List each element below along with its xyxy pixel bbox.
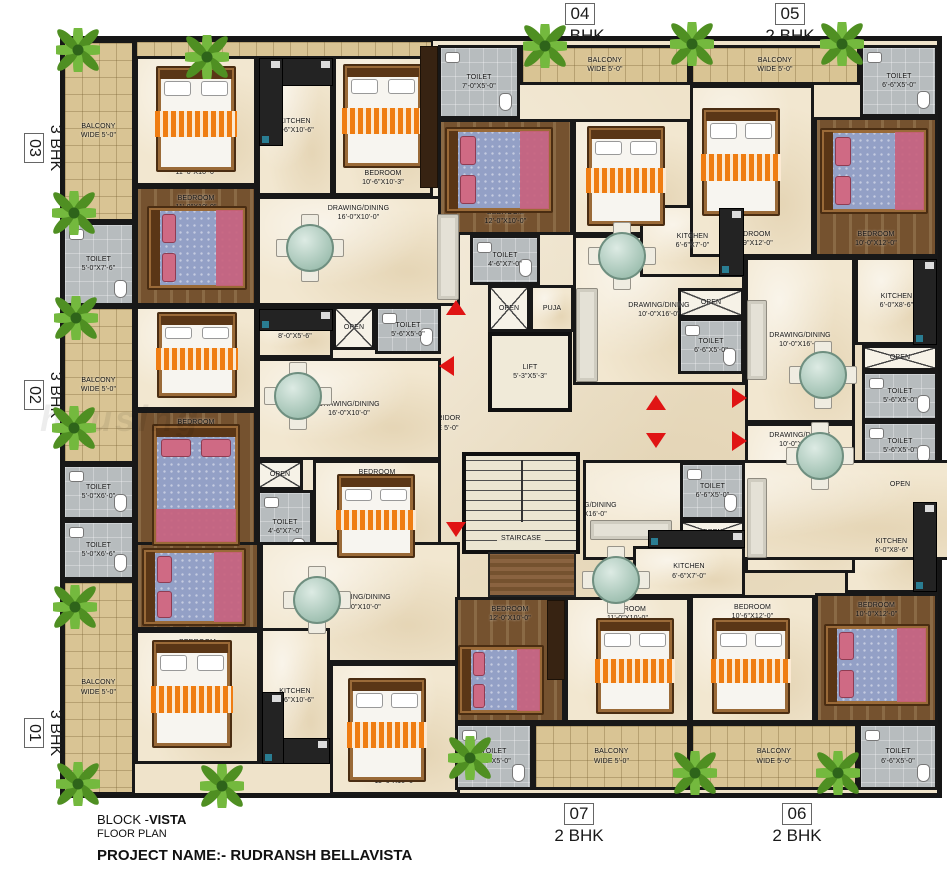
room-name: BEDROOM	[732, 603, 774, 612]
room-name: TOILET	[82, 255, 116, 264]
sofa-icon	[747, 478, 767, 558]
room-dimensions: 5'-6"X5'-0"	[883, 396, 917, 405]
plant-icon	[670, 22, 714, 66]
unit-type: 3 BHK	[46, 710, 64, 756]
sofa-icon	[747, 300, 767, 380]
bed-icon	[587, 126, 665, 226]
room-name: BEDROOM	[856, 601, 898, 610]
room-dimensions: 6'-6"X5'-0"	[696, 491, 730, 500]
room-label: DRAWING/DINING10'-0"X16'-0"	[583, 501, 617, 519]
room-toi01: TOILET5'-0"X6'-6"	[62, 520, 135, 580]
plant-icon	[673, 751, 717, 795]
room-open02: OPEN	[333, 306, 375, 350]
room-label: TOILET4'-6"X7'-0"	[488, 251, 522, 269]
unit-number: 06	[782, 803, 813, 825]
room-name: KITCHEN	[676, 232, 710, 241]
kitchen-counter-icon	[719, 208, 744, 276]
room-dimensions: 5'-0"X7'-6"	[82, 264, 116, 273]
bed-icon	[147, 206, 247, 290]
direction-arrow-icon	[646, 433, 666, 448]
room-name: OPEN	[499, 304, 519, 313]
room-toi05a: TOILET6'-6"X5'-0"	[860, 45, 938, 117]
sofa-icon	[437, 214, 459, 300]
bed-icon	[458, 645, 544, 715]
room-name: OPEN	[701, 298, 721, 307]
plant-icon	[52, 191, 96, 235]
direction-arrow-icon	[439, 356, 454, 376]
room-dimensions: 5'-0"X6'-6"	[82, 550, 116, 559]
bed-icon	[152, 640, 232, 748]
dining-table-icon	[786, 422, 854, 490]
direction-arrow-icon	[446, 300, 466, 315]
room-name: TOILET	[883, 387, 917, 396]
kitchen-counter-icon	[913, 259, 937, 345]
project-name: PROJECT NAME:- RUDRANSH BELLAVISTA	[97, 847, 412, 864]
room-name: TOILET	[883, 437, 917, 446]
room-name: DRAWING/DINING	[628, 301, 689, 310]
room-name: TOILET	[882, 72, 916, 81]
room-dimensions: 12'-0"X10'-0"	[485, 217, 527, 226]
room-name: KITCHEN	[880, 292, 914, 301]
bed-icon	[337, 474, 415, 558]
room-name: TOILET	[82, 541, 116, 550]
dining-table-icon	[283, 566, 351, 634]
room-label: BEDROOM10'-6"X10'-3"	[362, 169, 404, 187]
bed-icon	[824, 624, 930, 706]
room-label: PUJA	[543, 304, 561, 313]
bed-icon	[712, 618, 790, 714]
room-dimensions: 10'-0"X12'-0"	[856, 610, 898, 619]
unit-number: 05	[775, 3, 806, 25]
kitchen-counter-icon	[913, 502, 937, 592]
unit-label-03: 3 BHK 03	[21, 93, 67, 203]
room-name: BALCONY	[81, 678, 116, 687]
room-name: BEDROOM	[489, 605, 531, 614]
room-dimensions: 5'-6"X5'-0"	[883, 446, 917, 455]
title-block: BLOCK -VISTA FLOOR PLAN PROJECT NAME:- R…	[97, 812, 412, 864]
room-label: BALCONYWIDE 5'-0"	[81, 376, 116, 394]
unit-label-07: 07 2 BHK	[534, 803, 624, 846]
room-dimensions: WIDE 5'-0"	[594, 757, 629, 766]
room-dimensions: 6'-6"X7'-0"	[672, 572, 706, 581]
room-dimensions: WIDE 5'-0"	[587, 65, 622, 74]
room-label: TOILET6'-6"X5'-0"	[694, 337, 728, 355]
unit-number: 01	[24, 718, 44, 748]
room-dimensions: 5'-6"X5'-0"	[391, 330, 425, 339]
room-toi05b: TOILET5'-6"X5'-0"	[862, 371, 938, 421]
room-label: BALCONYWIDE 5'-0"	[81, 678, 116, 696]
room-dimensions: 6'-0"X8'-6"	[875, 546, 909, 555]
room-dimensions: 10'-6"X10'-3"	[362, 178, 404, 187]
room-name: TOILET	[694, 337, 728, 346]
room-label: BEDROOM12'-0"X10'-0"	[489, 605, 531, 623]
room-name: PUJA	[543, 304, 561, 313]
room-name: TOILET	[881, 747, 915, 756]
room-label: BALCONYWIDE 5'-0"	[587, 56, 622, 74]
room-name: BALCONY	[757, 56, 792, 65]
room-name: OPEN	[344, 323, 364, 332]
room-label: KITCHEN6'-0"X8'-6"	[880, 292, 914, 310]
plant-icon	[816, 751, 860, 795]
room-name: BALCONY	[587, 56, 622, 65]
room-label: BEDROOM10'-0"X12'-0"	[856, 601, 898, 619]
room-name: KITCHEN	[875, 537, 909, 546]
room-dimensions: 5'-0"X6'-0"	[82, 492, 116, 501]
room-name: STAIRCASE	[501, 534, 541, 543]
room-label: TOILET5'-0"X6'-6"	[82, 541, 116, 559]
dining-table-icon	[264, 362, 332, 430]
plant-icon	[56, 762, 100, 806]
room-dimensions: 10'-0"X16'-0"	[628, 310, 689, 319]
kitchen-counter-icon	[259, 58, 283, 146]
room-dimensions: 12'-0"X10'-0"	[489, 614, 531, 623]
room-toi06a: TOILET6'-6"X5'-0"	[858, 723, 938, 790]
room-label: TOILET5'-6"X5'-0"	[883, 437, 917, 455]
room-label: TOILET5'-6"X5'-0"	[391, 321, 425, 339]
plant-icon	[523, 24, 567, 68]
room-label: OPEN	[890, 353, 910, 362]
room-name: TOILET	[488, 251, 522, 260]
room-open05: OPEN	[862, 345, 938, 371]
room-label: KITCHEN6'-6"X7'-0"	[672, 562, 706, 580]
unit-type: 2 BHK	[765, 26, 814, 46]
kitchen-counter-icon	[259, 309, 333, 331]
room-name: BALCONY	[756, 747, 791, 756]
room-toi04a: TOILET7'-0"X5'-0"	[438, 45, 520, 119]
room-dimensions: 7'-0"X5'-0"	[462, 82, 496, 91]
room-label: TOILET6'-6"X5'-0"	[882, 72, 916, 90]
room-dimensions: 4'-6"X7'-0"	[268, 527, 302, 536]
room-name: BEDROOM	[362, 169, 404, 178]
plant-icon	[54, 296, 98, 340]
room-name: LIFT	[513, 363, 547, 372]
room-label: LIFT5'-3"X5'-3"	[513, 363, 547, 381]
wardrobe-icon	[547, 600, 565, 680]
room-name: BALCONY	[81, 122, 116, 131]
room-label: BALCONYWIDE 5'-0"	[594, 747, 629, 765]
direction-arrow-icon	[446, 522, 466, 537]
block-title: BLOCK -VISTA	[97, 812, 412, 827]
room-dimensions: WIDE 5'-0"	[81, 688, 116, 697]
plant-icon	[52, 406, 96, 450]
room-name: OPEN	[270, 470, 290, 479]
room-name: BALCONY	[594, 747, 629, 756]
floor-plan-label: FLOOR PLAN	[97, 828, 412, 840]
room-label: KITCHEN6'-6"X7'-0"	[676, 232, 710, 250]
room-toi04b: TOILET4'-6"X7'-0"	[470, 235, 540, 285]
room-name: DRAWING/DINING	[328, 204, 389, 213]
bed-icon	[343, 64, 423, 168]
room-open04: OPEN	[488, 285, 530, 332]
unit-type: 2 BHK	[772, 826, 821, 846]
room-dimensions: 6'-0"X8'-6"	[880, 301, 914, 310]
unit-type: 2 BHK	[554, 826, 603, 846]
room-label: OPEN	[701, 298, 721, 307]
room-label: OPEN	[270, 470, 290, 479]
bed-icon	[157, 312, 237, 398]
kitchen-counter-icon	[648, 530, 745, 548]
unit-label-06: 06 2 BHK	[752, 803, 842, 846]
dining-table-icon	[582, 546, 650, 614]
room-puja04: PUJA	[530, 285, 574, 332]
room-dimensions: 4'-6"X7'-0"	[488, 260, 522, 269]
direction-arrow-icon	[732, 431, 747, 451]
bed-icon	[702, 108, 780, 216]
room-label: OPEN	[890, 480, 910, 489]
bed-icon	[156, 66, 236, 172]
room-label: OPEN	[344, 323, 364, 332]
wood-passage	[488, 552, 576, 597]
plant-icon	[820, 22, 864, 66]
direction-arrow-icon	[646, 395, 666, 410]
direction-arrow-icon	[732, 388, 747, 408]
bed-icon	[152, 424, 240, 546]
plant-icon	[53, 585, 97, 629]
kitchen-counter-icon	[262, 692, 284, 764]
room-name: TOILET	[391, 321, 425, 330]
room-lift: LIFT5'-3"X5'-3"	[488, 332, 572, 412]
room-label: TOILET6'-6"X5'-0"	[881, 747, 915, 765]
dining-table-icon	[276, 214, 344, 282]
room-label: BALCONYWIDE 5'-0"	[81, 122, 116, 140]
room-label: BALCONYWIDE 5'-0"	[756, 747, 791, 765]
room-name: BEDROOM	[855, 230, 897, 239]
room-label: OPEN	[499, 304, 519, 313]
room-dimensions: 10'-0"X12'-0"	[855, 239, 897, 248]
dining-table-icon	[789, 341, 857, 409]
room-name: BEDROOM	[175, 194, 216, 203]
room-label: TOILET5'-0"X7'-6"	[82, 255, 116, 273]
room-dimensions: WIDE 5'-0"	[81, 131, 116, 140]
room-stair: STAIRCASE	[462, 452, 580, 554]
room-label: KITCHEN6'-0"X8'-6"	[875, 537, 909, 555]
room-dimensions: 6'-6"X5'-0"	[694, 346, 728, 355]
balcony-strip	[135, 40, 433, 58]
room-name: TOILET	[268, 518, 302, 527]
room-name: DRAWING/DINING	[583, 501, 617, 510]
wardrobe-icon	[420, 46, 438, 188]
room-dimensions: WIDE 5'-0"	[757, 65, 792, 74]
room-name: OPEN	[890, 353, 910, 362]
room-name: TOILET	[82, 483, 116, 492]
room-label: DRAWING/DINING10'-0"X16'-0"	[628, 301, 689, 319]
unit-number: 03	[24, 133, 44, 163]
room-name: CORRIDOR	[441, 414, 460, 423]
room-name: OPEN	[890, 480, 910, 489]
room-toi02b: TOILET5'-6"X5'-0"	[375, 306, 441, 354]
room-dimensions: 6'-6"X7'-0"	[676, 241, 710, 250]
room-bal07: BALCONYWIDE 5'-0"	[533, 723, 690, 790]
room-dimensions: 6'-6"X5'-0"	[881, 757, 915, 766]
plant-icon	[56, 28, 100, 72]
room-dimensions: WIDE 5'-0"	[441, 424, 460, 433]
floor-plan-page: BALCONYWIDE 5'-0"TOILET5'-0"X7'-6"BEDROO…	[0, 0, 947, 870]
room-dimensions: WIDE 5'-0"	[81, 385, 116, 394]
room-name: TOILET	[696, 482, 730, 491]
bed-icon	[596, 618, 674, 714]
room-label: TOILET6'-6"X5'-0"	[696, 482, 730, 500]
unit-number: 04	[565, 3, 596, 25]
room-dimensions: 5'-3"X5'-3"	[513, 372, 547, 381]
plant-icon	[185, 35, 229, 79]
room-dimensions: 10'-0"X16'-0"	[583, 510, 617, 519]
room-toi02a: TOILET5'-0"X6'-0"	[62, 464, 135, 520]
unit-number: 07	[564, 803, 595, 825]
room-label: TOILET4'-6"X7'-0"	[268, 518, 302, 536]
room-label: STAIRCASE	[497, 533, 545, 544]
room-label: TOILET5'-0"X6'-0"	[82, 483, 116, 501]
room-toi04c: TOILET6'-6"X5'-0"	[678, 318, 744, 374]
room-label: CORRIDORWIDE 5'-0"	[441, 414, 460, 432]
room-dimensions: 8'-0"X5'-6"	[278, 332, 312, 341]
sofa-icon	[576, 288, 598, 382]
room-toi07b: TOILET6'-6"X5'-0"	[680, 462, 745, 520]
unit-type: 3 BHK	[46, 125, 64, 171]
room-name: KITCHEN	[672, 562, 706, 571]
room-open02b: OPEN	[257, 460, 303, 490]
plant-icon	[448, 736, 492, 780]
dining-table-icon	[588, 222, 656, 290]
room-label: BEDROOM10'-0"X12'-0"	[855, 230, 897, 248]
room-label: BALCONYWIDE 5'-0"	[757, 56, 792, 74]
bed-icon	[348, 678, 426, 782]
room-dimensions: 6'-6"X5'-0"	[882, 81, 916, 90]
room-name: DRAWING/DINING	[769, 331, 830, 340]
room-label: TOILET5'-6"X5'-0"	[883, 387, 917, 405]
room-dimensions: WIDE 5'-0"	[756, 757, 791, 766]
room-name: TOILET	[462, 73, 496, 82]
room-name: BALCONY	[81, 376, 116, 385]
plant-icon	[200, 764, 244, 808]
bed-icon	[820, 128, 928, 214]
room-label: TOILET7'-0"X5'-0"	[462, 73, 496, 91]
bed-icon	[445, 127, 553, 213]
bed-icon	[142, 548, 246, 626]
